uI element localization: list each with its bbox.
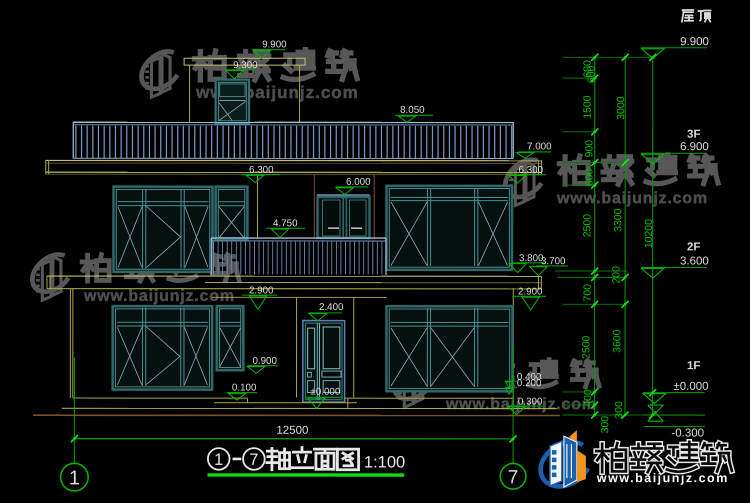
svg-text:±0.000: ±0.000 xyxy=(310,387,340,398)
svg-text:6.900: 6.900 xyxy=(680,141,709,153)
svg-text:400: 400 xyxy=(582,389,594,407)
svg-text:±0.000: ±0.000 xyxy=(673,381,708,393)
svg-text:3000: 3000 xyxy=(615,96,627,120)
svg-text:0.900: 0.900 xyxy=(252,356,277,367)
svg-text:3300: 3300 xyxy=(612,208,624,232)
svg-text:900: 900 xyxy=(584,140,596,158)
svg-text:-0.300: -0.300 xyxy=(671,427,704,439)
svg-text:4.750: 4.750 xyxy=(273,218,298,229)
svg-text:2500: 2500 xyxy=(580,335,592,359)
svg-text:8.050: 8.050 xyxy=(400,105,425,116)
svg-text:300: 300 xyxy=(613,401,625,419)
svg-text:2500: 2500 xyxy=(582,214,594,238)
svg-text:1500: 1500 xyxy=(582,95,594,119)
svg-text:3F: 3F xyxy=(687,129,700,141)
svg-text:700: 700 xyxy=(582,284,594,302)
svg-text:0.200: 0.200 xyxy=(517,378,542,389)
svg-text:2.400: 2.400 xyxy=(319,302,344,313)
svg-text:www.baijunjz.com: www.baijunjz.com xyxy=(83,288,235,305)
svg-text:2F: 2F xyxy=(687,241,700,253)
svg-text:12500: 12500 xyxy=(276,425,308,437)
svg-text:1:100: 1:100 xyxy=(364,453,405,471)
svg-text:6.000: 6.000 xyxy=(346,177,371,188)
svg-text:9.900: 9.900 xyxy=(262,39,287,50)
svg-text:300: 300 xyxy=(599,416,611,434)
svg-text:1F: 1F xyxy=(687,360,700,372)
svg-text:200: 200 xyxy=(610,266,622,284)
svg-text:1: 1 xyxy=(214,451,223,469)
svg-text:600: 600 xyxy=(586,65,598,83)
svg-text:1: 1 xyxy=(69,467,80,489)
svg-text:7.000: 7.000 xyxy=(527,141,552,152)
svg-text:7: 7 xyxy=(249,451,258,469)
svg-text:600: 600 xyxy=(584,168,596,186)
svg-text:www.baijunjz.com: www.baijunjz.com xyxy=(596,471,729,485)
svg-text:10200: 10200 xyxy=(643,219,655,248)
svg-text:3.600: 3.600 xyxy=(680,255,709,267)
svg-text:9.900: 9.900 xyxy=(680,36,709,48)
svg-text:0.100: 0.100 xyxy=(232,383,257,394)
svg-text:7: 7 xyxy=(508,467,519,488)
svg-text:3600: 3600 xyxy=(611,329,623,353)
svg-text:www.baijunjz.com: www.baijunjz.com xyxy=(556,190,708,207)
